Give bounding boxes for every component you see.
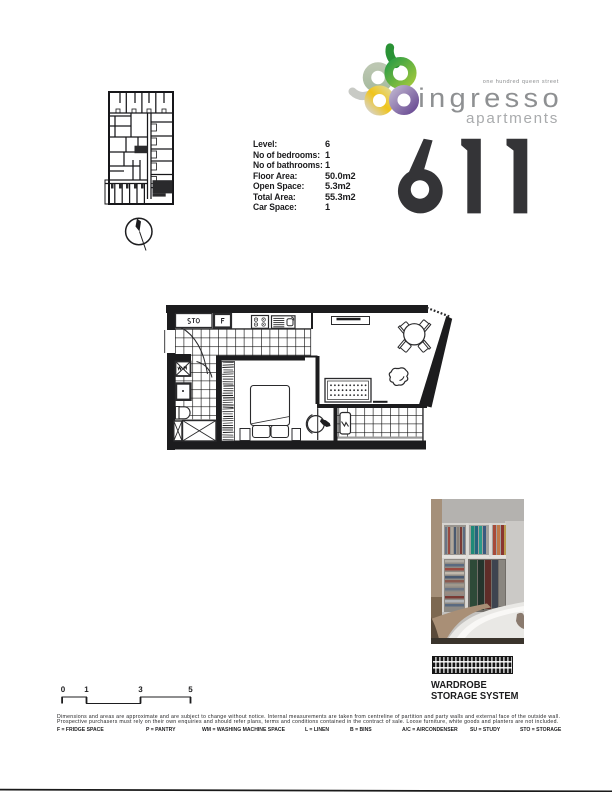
svg-text:0: 0 [61,685,66,694]
svg-text:5: 5 [188,685,193,694]
svg-text:1: 1 [84,685,89,694]
svg-text:3: 3 [138,685,143,694]
